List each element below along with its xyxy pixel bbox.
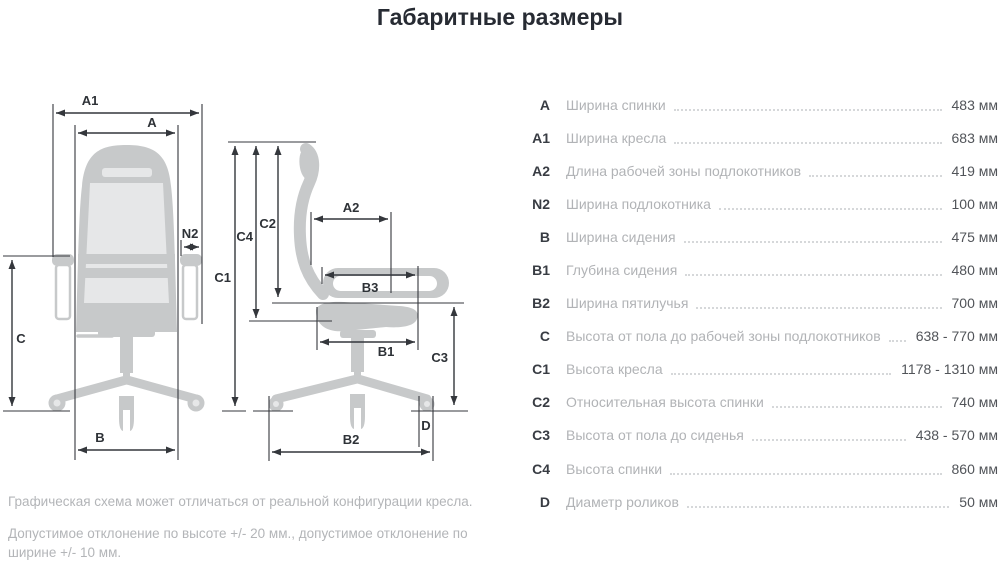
dimension-row: C4 Высота спинки 860 мм xyxy=(522,452,998,485)
base-leg-back xyxy=(276,379,357,399)
chair-side-view xyxy=(269,147,450,429)
dimension-row: C Высота от пола до рабочей зоны подлоко… xyxy=(522,320,998,353)
dimension-value: 860 мм xyxy=(952,461,999,477)
dim-label-a2: A2 xyxy=(343,200,360,215)
dimension-label: Высота от пола до рабочей зоны подлокотн… xyxy=(566,328,881,344)
side-view-dimensions: C1 C4 C2 A2 B3 B1 C3 B2 D xyxy=(214,142,468,461)
dim-label-c2: C2 xyxy=(259,216,276,231)
lumbar-band-lower xyxy=(79,268,174,278)
dimension-code: A1 xyxy=(522,130,550,146)
headrest-divider xyxy=(102,168,152,177)
seat-front xyxy=(84,303,169,326)
armrest-post-left xyxy=(56,265,70,319)
note-tolerance: Допустимое отклонение по высоте +/- 20 м… xyxy=(8,524,513,563)
armrest-side-inner xyxy=(333,276,437,291)
dimension-row: C2 Относительная высота спинки 740 мм xyxy=(522,386,998,419)
caster-left-hub xyxy=(54,400,61,407)
chair-front-view xyxy=(49,145,205,431)
leader-dots xyxy=(684,241,942,243)
dim-label-c3: C3 xyxy=(431,350,448,365)
leader-dots xyxy=(752,439,906,441)
dimension-value: 700 мм xyxy=(952,295,999,311)
leader-dots xyxy=(674,142,941,144)
front-caster-fork xyxy=(119,396,134,431)
armrest-post-right xyxy=(183,265,197,319)
dim-label-b3: B3 xyxy=(362,280,379,295)
front-caster-fork-side xyxy=(350,394,365,429)
dim-label-d: D xyxy=(421,418,430,433)
dimension-label: Высота спинки xyxy=(566,461,662,477)
dimension-row: C1 Высота кресла 1178 - 1310 мм xyxy=(522,353,998,386)
caster-front-hub xyxy=(424,401,430,407)
dimension-label: Высота от пола до сиденья xyxy=(566,427,744,443)
dimension-label: Ширина пятилучья xyxy=(566,295,688,311)
dimension-code: C4 xyxy=(522,461,550,477)
dimension-row: B Ширина сидения 475 мм xyxy=(522,220,998,253)
dim-label-a: A xyxy=(147,115,157,130)
dimension-code: C3 xyxy=(522,427,550,443)
dimension-label: Высота кресла xyxy=(566,361,663,377)
caster-right-hub xyxy=(193,400,200,407)
dimension-code: C1 xyxy=(522,361,550,377)
dimension-value: 1178 - 1310 мм xyxy=(901,361,998,377)
leader-dots xyxy=(674,109,942,111)
dim-label-c: C xyxy=(16,331,26,346)
gas-lift xyxy=(120,337,133,373)
dimension-code: A2 xyxy=(522,163,550,179)
leader-dots xyxy=(809,175,941,177)
base-leg-front xyxy=(358,379,427,399)
leader-dots xyxy=(696,307,941,309)
dim-label-c4: C4 xyxy=(236,229,253,244)
dimension-code: B1 xyxy=(522,262,550,278)
dim-label-b: B xyxy=(95,430,104,445)
dimension-value: 740 мм xyxy=(952,394,999,410)
dimension-label: Ширина спинки xyxy=(566,97,666,113)
dimension-value: 480 мм xyxy=(952,262,999,278)
dimension-label: Ширина сидения xyxy=(566,229,676,245)
dimension-label: Ширина кресла xyxy=(566,130,666,146)
dimension-code: N2 xyxy=(522,196,550,212)
dimension-row: B1 Глубина сидения 480 мм xyxy=(522,253,998,286)
dimension-row: B2 Ширина пятилучья 700 мм xyxy=(522,287,998,320)
leader-dots xyxy=(670,473,941,475)
dimension-label: Глубина сидения xyxy=(566,262,677,278)
leader-dots xyxy=(772,406,942,408)
dimension-row: A Ширина спинки 483 мм xyxy=(522,88,998,121)
caster-back-hub xyxy=(273,401,279,407)
dimensions-table: A Ширина спинки 483 мм A1 Ширина кресла … xyxy=(522,88,998,518)
dimension-code: A xyxy=(522,97,550,113)
dimension-value: 683 мм xyxy=(952,130,999,146)
dimension-value: 100 мм xyxy=(952,196,999,212)
note-configuration: Графическая схема может отличаться от ре… xyxy=(8,492,513,512)
dimension-code: D xyxy=(522,494,550,510)
dimension-label: Длина рабочей зоны подлокотников xyxy=(566,163,801,179)
dimension-code: C2 xyxy=(522,394,550,410)
dimension-value: 483 мм xyxy=(952,97,999,113)
dimension-row: A2 Длина рабочей зоны подлокотников 419 … xyxy=(522,154,998,187)
leader-dots xyxy=(687,506,949,508)
dimension-row: A1 Ширина кресла 683 мм xyxy=(522,121,998,154)
leader-dots xyxy=(719,208,942,210)
leader-dots xyxy=(671,373,892,375)
dim-label-b1: B1 xyxy=(378,344,395,359)
chair-dimension-diagram: A1 A N2 C B xyxy=(0,0,500,490)
dimension-value: 419 мм xyxy=(952,163,999,179)
dimension-code: B2 xyxy=(522,295,550,311)
backrest-mesh xyxy=(84,183,169,303)
dim-label-c1: C1 xyxy=(214,270,231,285)
dimension-value: 638 - 770 мм xyxy=(916,328,998,344)
dimension-value: 438 - 570 мм xyxy=(916,427,998,443)
dimension-row: C3 Высота от пола до сиденья 438 - 570 м… xyxy=(522,419,998,452)
dim-label-n2: N2 xyxy=(182,226,199,241)
footnotes: Графическая схема может отличаться от ре… xyxy=(8,492,513,575)
dim-label-b2: B2 xyxy=(343,432,360,447)
dimension-label: Относительная высота спинки xyxy=(566,394,764,410)
leader-dots xyxy=(889,340,906,342)
dimension-row: D Диаметр роликов 50 мм xyxy=(522,485,998,518)
dimension-value: 50 мм xyxy=(959,494,998,510)
dimension-row: N2 Ширина подлокотника 100 мм xyxy=(522,187,998,220)
seat-side xyxy=(316,302,418,331)
base-leg-right xyxy=(127,380,196,399)
dimension-label: Ширина подлокотника xyxy=(566,196,711,212)
leader-dots xyxy=(685,274,941,276)
dimension-value: 475 мм xyxy=(952,229,999,245)
dimension-code: B xyxy=(522,229,550,245)
dim-label-a1: A1 xyxy=(82,93,99,108)
lumbar-band-upper xyxy=(78,254,175,264)
dimension-code: C xyxy=(522,328,550,344)
dimension-label: Диаметр роликов xyxy=(566,494,679,510)
base-leg-left xyxy=(57,380,126,399)
